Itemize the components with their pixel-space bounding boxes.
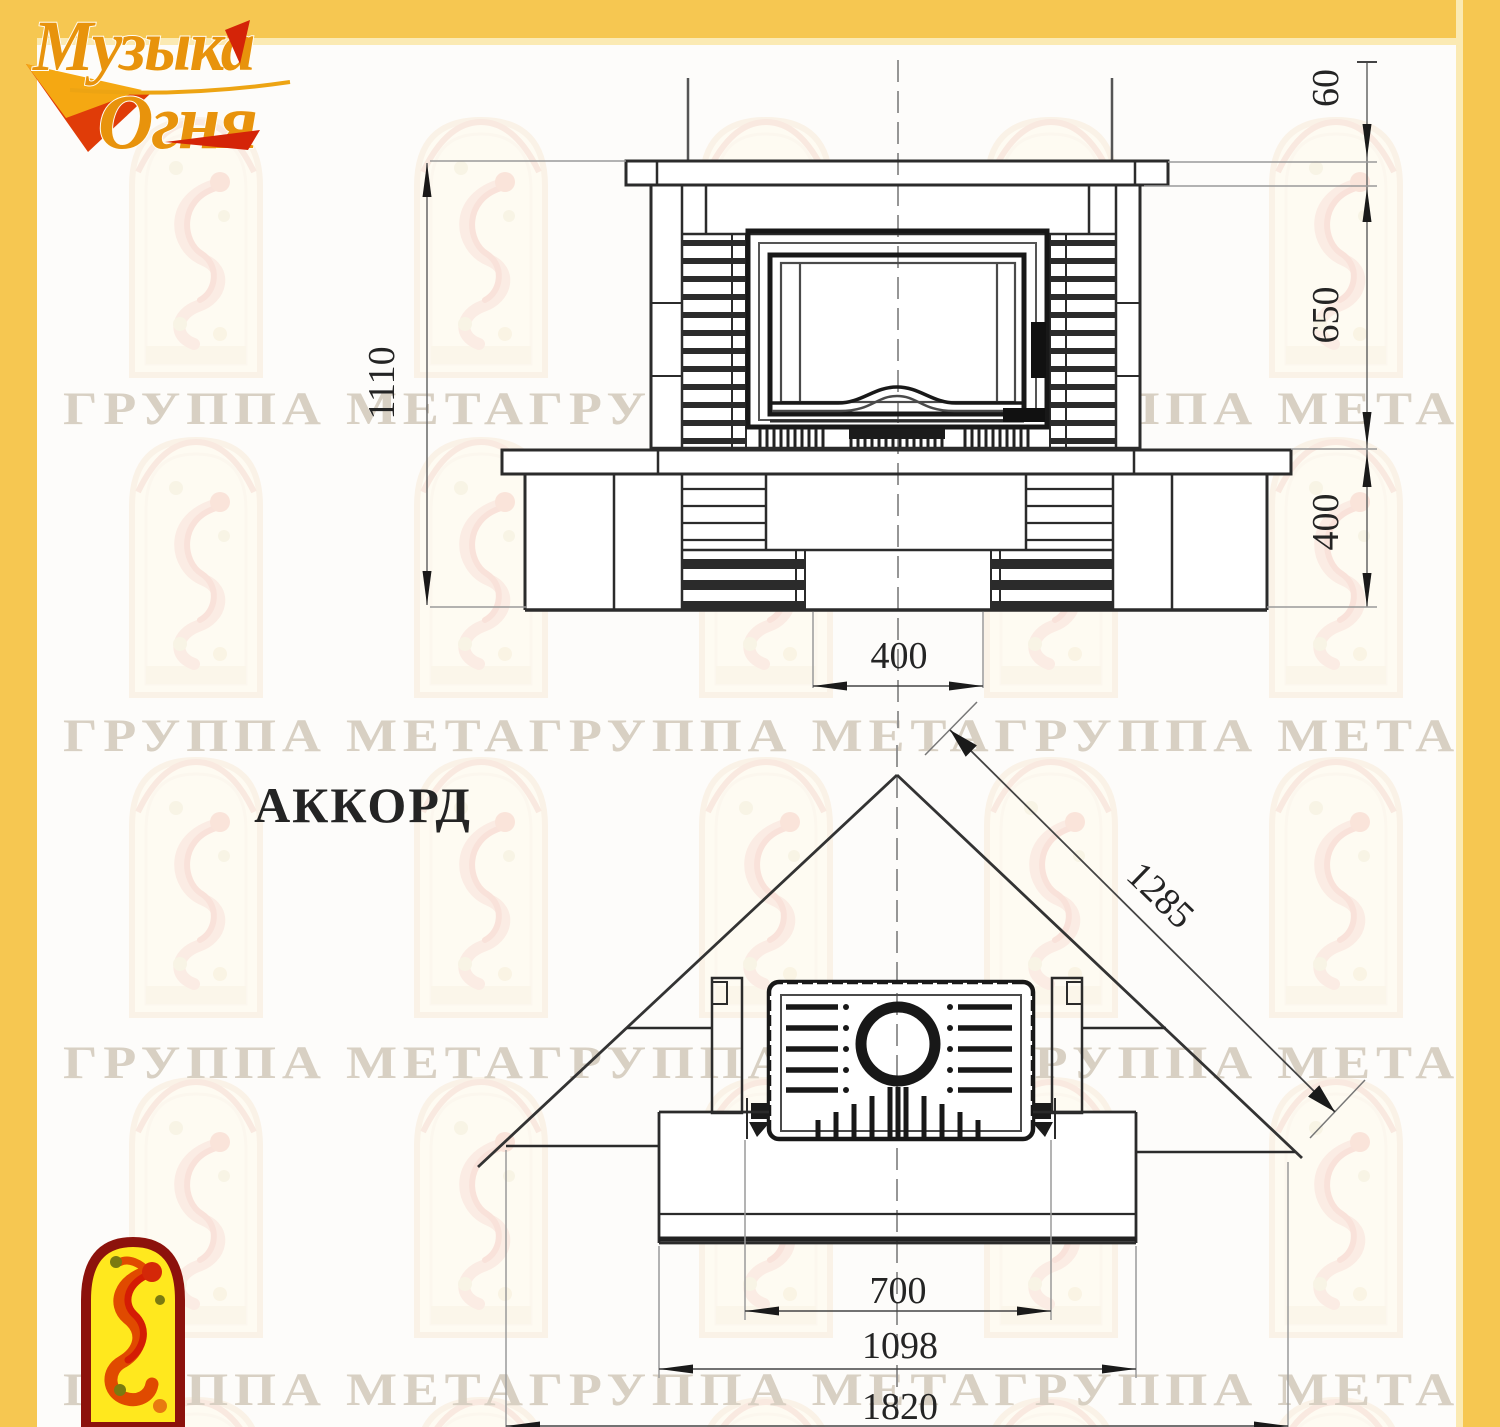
svg-text:Огня: Огня bbox=[98, 78, 256, 165]
svg-text:650: 650 bbox=[1305, 287, 1347, 344]
svg-text:АККОРД: АККОРД bbox=[254, 777, 472, 833]
svg-text:1110: 1110 bbox=[361, 346, 403, 419]
svg-text:400: 400 bbox=[1305, 494, 1347, 551]
svg-text:ГРУППА МЕТАГРУППА МЕТАГРУППА М: ГРУППА МЕТАГРУППА МЕТАГРУППА МЕТА bbox=[63, 710, 1460, 762]
svg-text:700: 700 bbox=[870, 1270, 927, 1312]
svg-text:ГРУППА МЕТАГРУППА МЕТАГРУППА М: ГРУППА МЕТАГРУППА МЕТАГРУППА МЕТА bbox=[63, 1037, 1460, 1089]
svg-text:60: 60 bbox=[1305, 69, 1347, 107]
svg-text:400: 400 bbox=[871, 635, 928, 677]
svg-text:1285: 1285 bbox=[1118, 854, 1202, 937]
svg-text:Музыка: Музыка bbox=[32, 6, 254, 86]
svg-text:1098: 1098 bbox=[862, 1325, 938, 1367]
svg-text:ГРУППА МЕТАГРУППА МЕТАГРУППА М: ГРУППА МЕТАГРУППА МЕТАГРУППА МЕТА bbox=[63, 1364, 1460, 1416]
svg-text:1820: 1820 bbox=[862, 1386, 938, 1427]
